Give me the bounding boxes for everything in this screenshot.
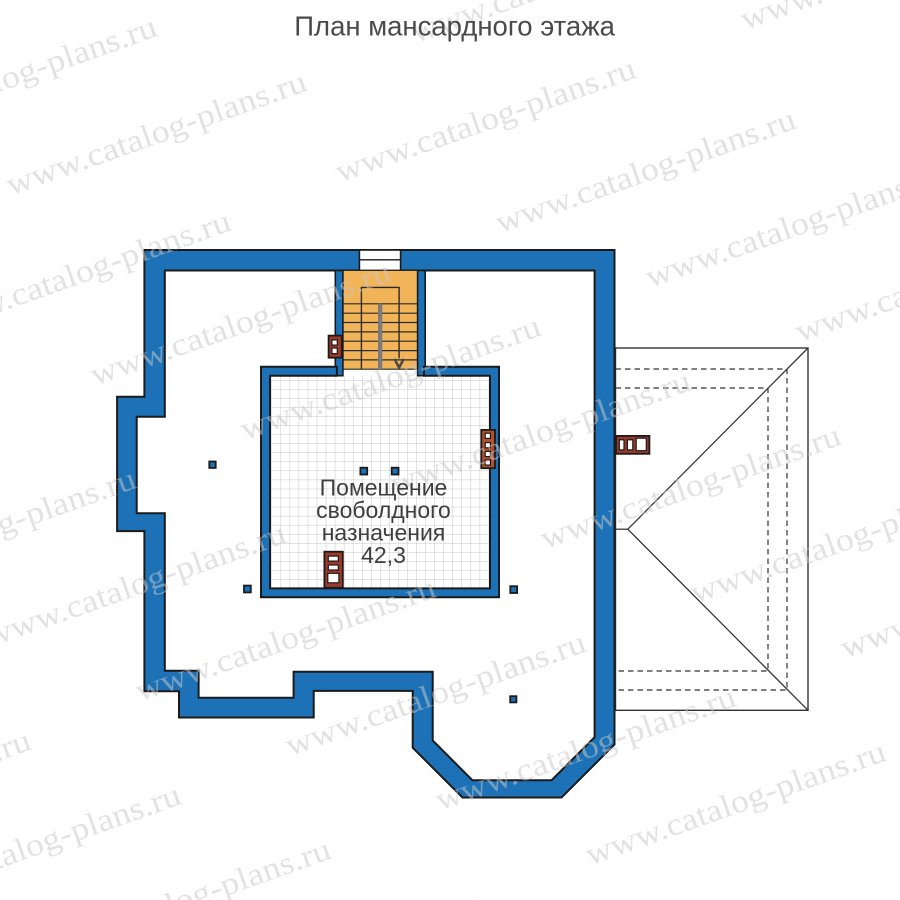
svg-text:План мансардного этажа: План мансардного этажа: [294, 11, 615, 42]
svg-text:42,3: 42,3: [361, 542, 406, 568]
